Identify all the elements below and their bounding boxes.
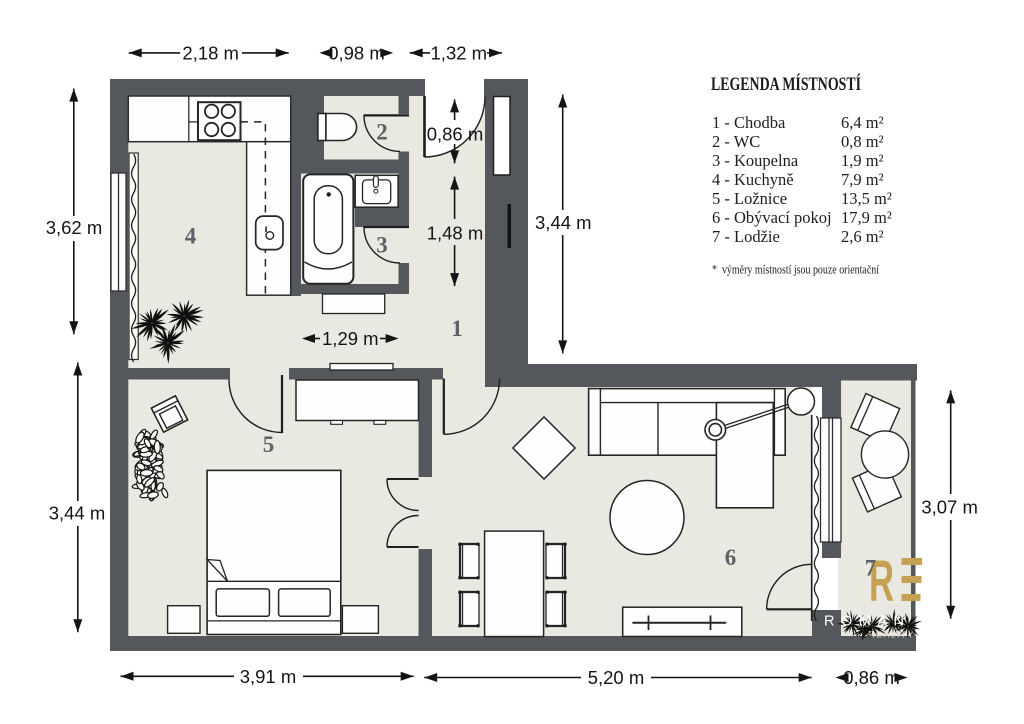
svg-text:0,8 m²: 0,8 m² xyxy=(841,132,884,151)
svg-text:0,98 m: 0,98 m xyxy=(328,43,385,64)
svg-text:4 - Kuchyně: 4 - Kuchyně xyxy=(712,170,794,189)
svg-text:LEGENDA MÍSTNOSTÍ: LEGENDA MÍSTNOSTÍ xyxy=(711,73,861,95)
svg-text:5: 5 xyxy=(263,432,275,457)
svg-text:6,4 m²: 6,4 m² xyxy=(841,113,884,132)
svg-text:17,9 m²: 17,9 m² xyxy=(841,208,892,227)
svg-text:4: 4 xyxy=(185,224,197,249)
svg-text:3: 3 xyxy=(376,233,388,258)
svg-text:7 - Lodžie: 7 - Lodžie xyxy=(712,227,780,246)
svg-text:2,6 m²: 2,6 m² xyxy=(841,227,884,246)
svg-text:0,86 m: 0,86 m xyxy=(843,667,900,688)
svg-text:5 - Ložnice: 5 - Ložnice xyxy=(712,189,787,208)
svg-text:2: 2 xyxy=(376,120,388,145)
svg-text:6: 6 xyxy=(725,545,737,570)
svg-text:3,44 m: 3,44 m xyxy=(49,503,106,524)
svg-text:* výměry místností jsou pouze: * výměry místností jsou pouze orientační xyxy=(712,263,879,277)
svg-text:5,20 m: 5,20 m xyxy=(588,667,645,688)
svg-text:1 - Chodba: 1 - Chodba xyxy=(712,113,786,132)
svg-text:2 - WC: 2 - WC xyxy=(712,132,760,151)
svg-text:7: 7 xyxy=(865,556,877,581)
svg-text:3 - Koupelna: 3 - Koupelna xyxy=(712,151,799,170)
svg-text:ROMAN: ROMAN xyxy=(824,614,910,630)
svg-text:3,44 m: 3,44 m xyxy=(535,212,592,233)
svg-text:1,9 m²: 1,9 m² xyxy=(841,151,884,170)
svg-text:1,29 m: 1,29 m xyxy=(322,328,379,349)
svg-text:1: 1 xyxy=(451,316,463,341)
svg-text:1,32 m: 1,32 m xyxy=(431,43,488,64)
svg-text:7,9 m²: 7,9 m² xyxy=(841,170,884,189)
svg-text:0,86 m: 0,86 m xyxy=(427,124,484,145)
svg-text:6 - Obývací pokoj: 6 - Obývací pokoj xyxy=(712,208,832,227)
svg-text:2,18 m: 2,18 m xyxy=(182,43,239,64)
svg-text:3,91 m: 3,91 m xyxy=(240,666,297,687)
svg-text:1,48 m: 1,48 m xyxy=(427,223,484,244)
svg-text:3,07 m: 3,07 m xyxy=(921,497,978,518)
svg-text:13,5 m²: 13,5 m² xyxy=(841,189,892,208)
svg-text:REALITY: REALITY xyxy=(869,631,915,640)
svg-text:3,62 m: 3,62 m xyxy=(46,217,103,238)
